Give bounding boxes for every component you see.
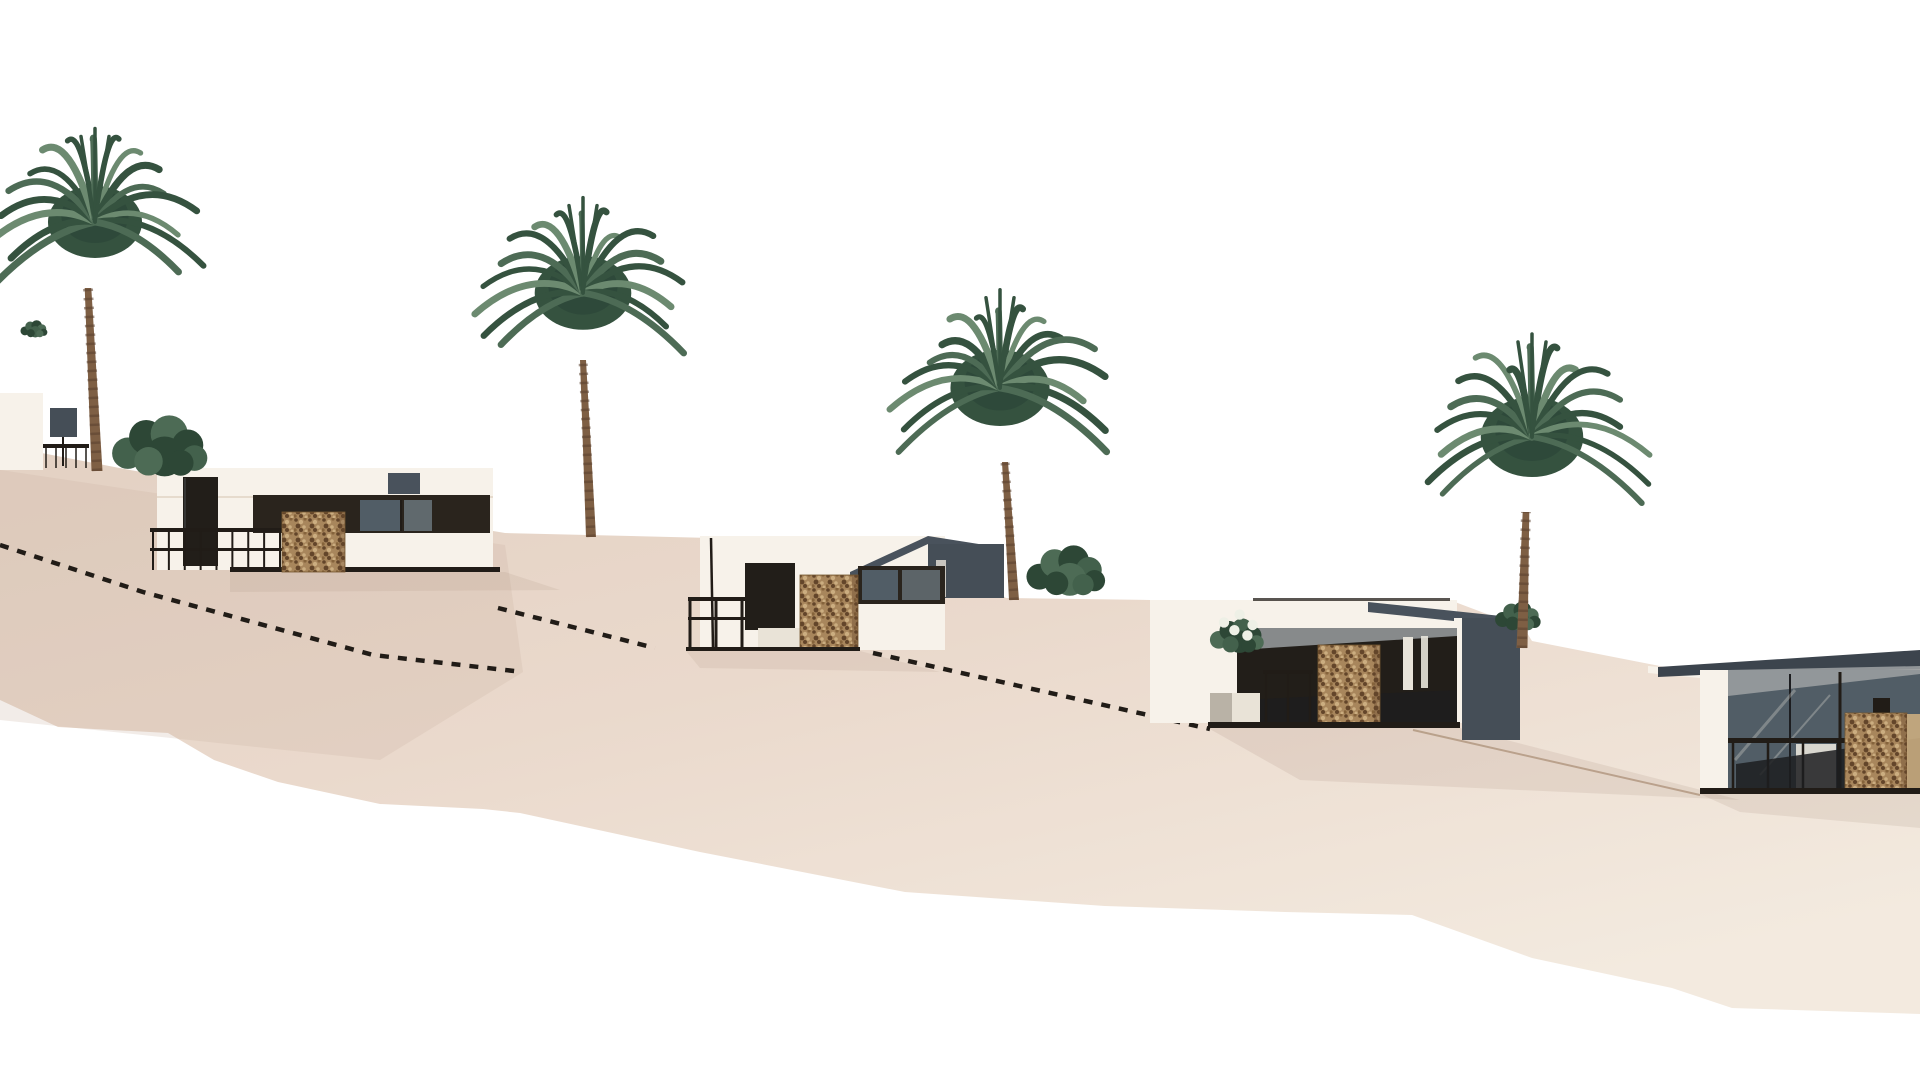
solar-panel <box>50 408 77 437</box>
glass-pane <box>360 500 400 531</box>
white-bloom <box>1219 617 1229 627</box>
planter <box>758 628 800 648</box>
stone-pillar <box>800 575 858 648</box>
door-frame <box>1403 637 1413 690</box>
glass-pane <box>862 570 898 600</box>
roof-shrub <box>20 320 47 337</box>
planter <box>1210 693 1232 723</box>
palm-tree-4 <box>1428 334 1650 648</box>
stone-pillar-shade <box>1374 645 1380 723</box>
white-bloom <box>1242 630 1252 640</box>
foliage <box>134 447 163 476</box>
stone-pillar <box>282 512 345 572</box>
villa-1 <box>150 468 500 572</box>
door-frame <box>1421 636 1428 688</box>
stone-pillar-shade <box>852 575 858 648</box>
foliage <box>27 329 35 337</box>
shadow-villa-1 <box>230 572 560 592</box>
stone-pillar <box>1845 713 1907 790</box>
base-line <box>1700 788 1920 794</box>
architectural-rendering <box>0 0 1920 1080</box>
railing-bar <box>1728 738 1845 743</box>
side-strip <box>1907 714 1920 790</box>
stone-pillar <box>1318 645 1380 723</box>
base-line <box>230 567 500 572</box>
wall <box>0 393 43 470</box>
palm-trunk <box>580 360 596 537</box>
foliage <box>1222 636 1238 652</box>
railing-bar <box>43 444 89 448</box>
white-bloom <box>1247 620 1257 630</box>
stone-pillar-shade <box>339 512 345 572</box>
blue-facade <box>1462 618 1520 740</box>
palm-tree-2 <box>475 198 684 537</box>
foliage <box>168 450 194 476</box>
foliage <box>1045 572 1069 596</box>
roof-edge <box>1253 598 1450 601</box>
stone-pillar-shade <box>1901 713 1907 790</box>
glass-pane <box>902 570 940 600</box>
white-bloom <box>1234 609 1244 619</box>
rooftop-unit <box>388 473 420 494</box>
scene-canvas <box>0 0 1920 1080</box>
foliage <box>36 330 43 337</box>
bush-villa-1 <box>112 415 207 476</box>
foliage <box>1072 574 1093 595</box>
planter <box>1232 693 1260 723</box>
white-pier <box>1700 670 1728 790</box>
villa-3 <box>1150 598 1520 740</box>
tall-glazing <box>745 563 795 630</box>
base-line <box>1208 722 1460 728</box>
white-bloom <box>1229 625 1239 635</box>
glass-pane <box>404 500 432 531</box>
foliage <box>1506 617 1520 631</box>
base-line <box>686 647 860 651</box>
bush-villa-2-right <box>1026 545 1105 595</box>
